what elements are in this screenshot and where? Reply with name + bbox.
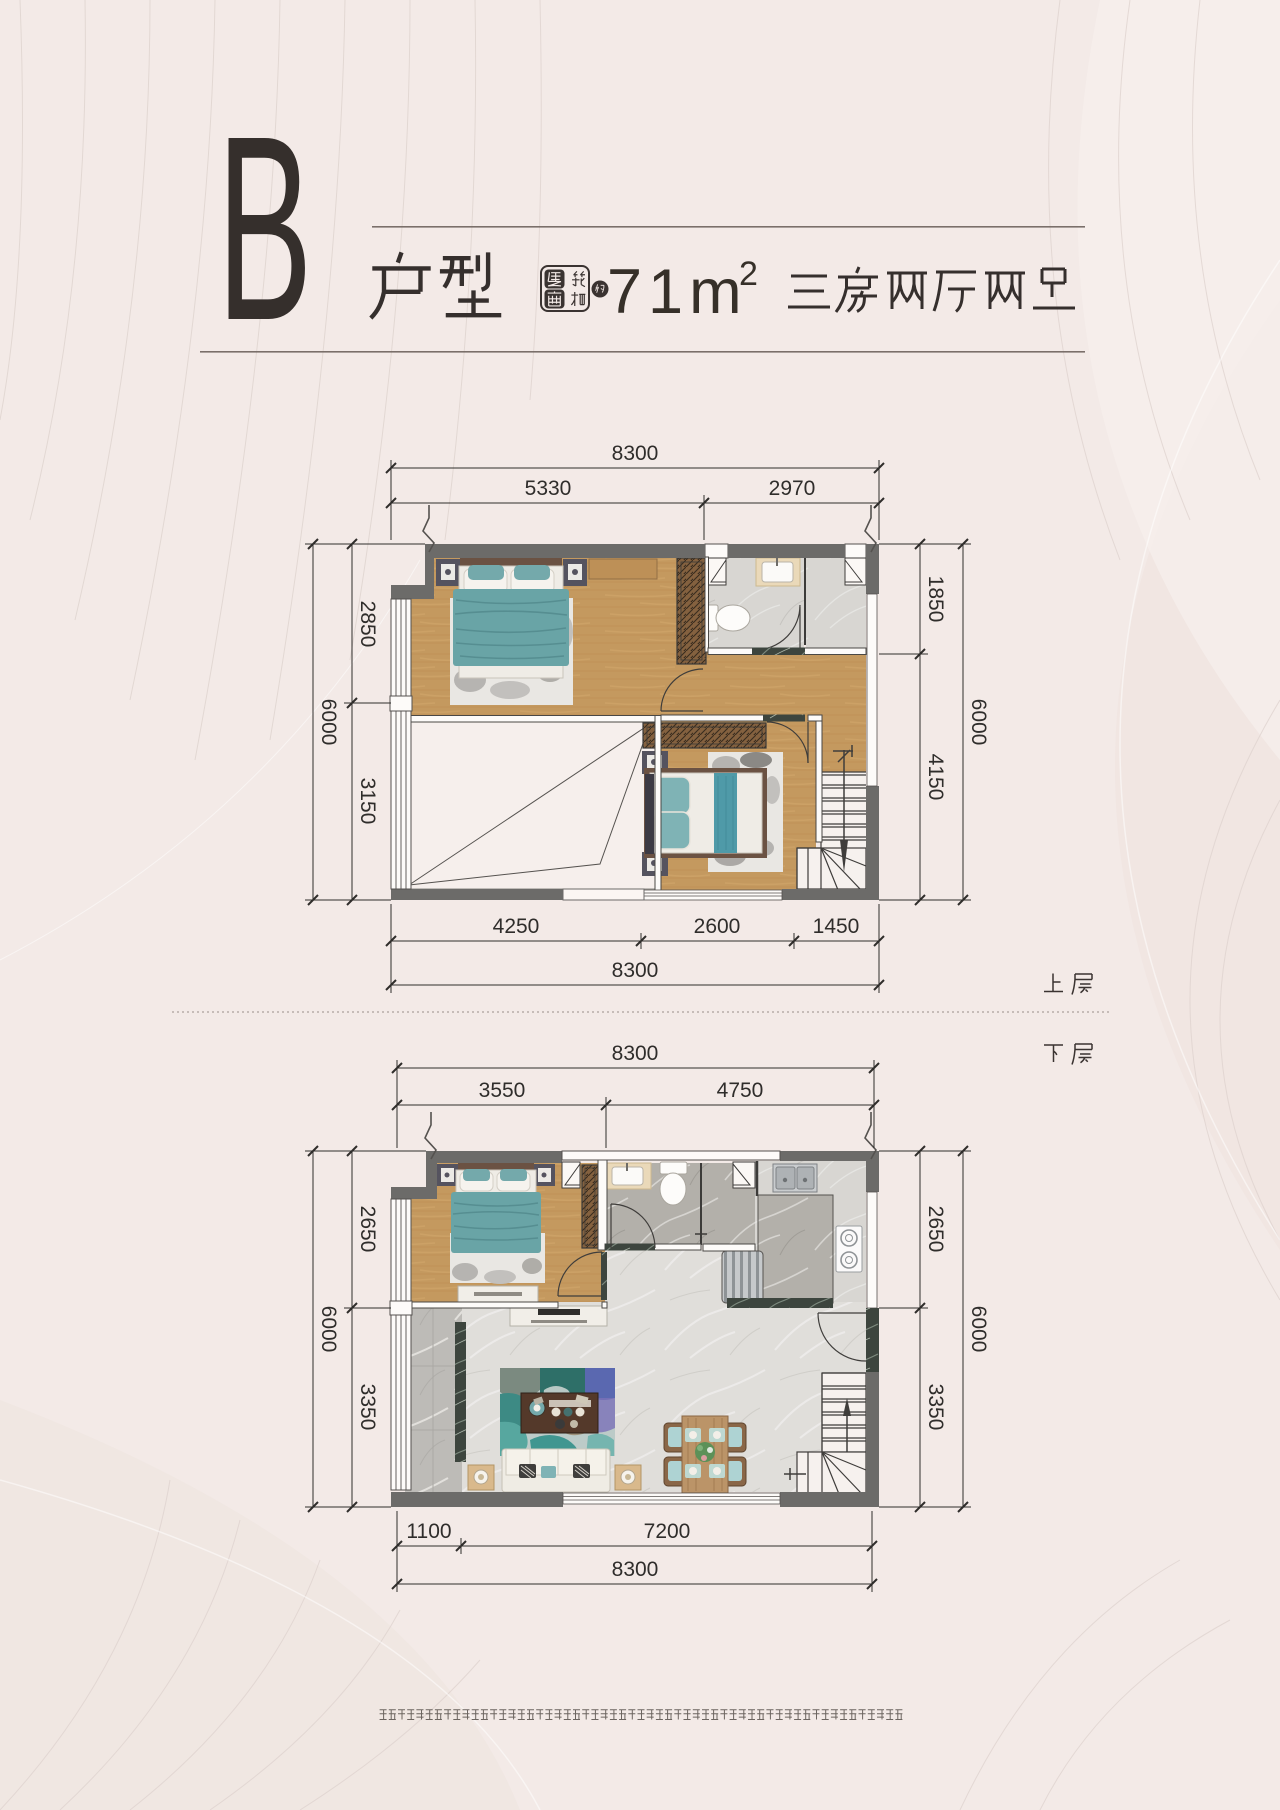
svg-text:6000: 6000: [317, 699, 340, 746]
svg-text:3150: 3150: [356, 778, 379, 825]
svg-text:2970: 2970: [769, 477, 816, 500]
svg-text:6000: 6000: [967, 699, 990, 746]
svg-text:4150: 4150: [924, 754, 947, 801]
svg-text:2850: 2850: [356, 601, 379, 648]
svg-text:5330: 5330: [525, 477, 572, 500]
svg-text:1450: 1450: [813, 915, 860, 938]
svg-text:8300: 8300: [612, 959, 659, 982]
svg-text:6000: 6000: [967, 1306, 990, 1353]
svg-text:1100: 1100: [406, 1520, 451, 1543]
svg-text:4750: 4750: [717, 1079, 764, 1102]
svg-text:4250: 4250: [493, 915, 540, 938]
svg-text:B: B: [217, 81, 313, 375]
svg-text:2600: 2600: [694, 915, 741, 938]
svg-text:1850: 1850: [924, 576, 947, 623]
svg-text:2650: 2650: [356, 1206, 379, 1253]
svg-text:8300: 8300: [612, 1558, 659, 1581]
svg-text:71m: 71m: [607, 257, 748, 327]
svg-text:3350: 3350: [924, 1384, 947, 1431]
svg-text:3350: 3350: [356, 1384, 379, 1431]
svg-text:8300: 8300: [612, 1042, 659, 1065]
svg-text:6000: 6000: [317, 1306, 340, 1353]
svg-text:2650: 2650: [924, 1206, 947, 1253]
svg-text:3550: 3550: [479, 1079, 526, 1102]
svg-text:8300: 8300: [612, 442, 659, 465]
svg-text:7200: 7200: [644, 1520, 691, 1543]
svg-text:2: 2: [739, 255, 758, 293]
